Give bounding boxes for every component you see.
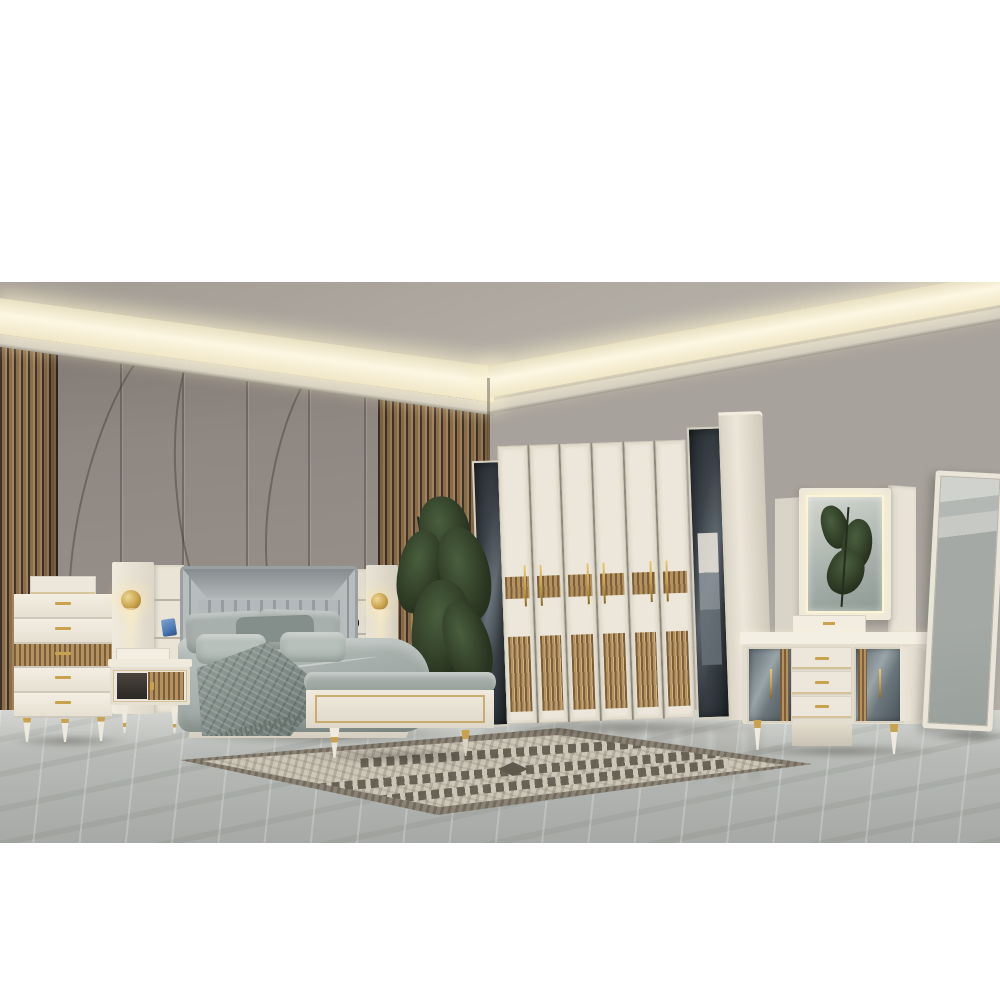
door-handle [770, 669, 772, 698]
dresser-mirror-door-left [747, 647, 793, 723]
bench-frame [306, 690, 494, 728]
dresser [740, 632, 936, 757]
dresser-counter [740, 632, 936, 644]
wood-strip [780, 649, 789, 721]
bench-gold-trim [315, 695, 485, 723]
mirror-reflection [697, 532, 722, 665]
bench-leg [328, 728, 341, 758]
chest-drawer-2 [14, 619, 112, 644]
door-slat-panel [603, 633, 627, 708]
chest-drawer-1 [14, 594, 112, 619]
drawer-handle [815, 705, 829, 708]
dresser-drawer-2 [791, 671, 852, 694]
nightstand-body [110, 667, 190, 705]
chest-drawer-5 [14, 693, 112, 718]
bedroom-photo [0, 282, 1000, 843]
bench [302, 672, 498, 758]
chest-leg [60, 719, 70, 742]
dresser-plinth [792, 724, 852, 746]
nightstand [108, 648, 196, 736]
dresser-mirror [799, 488, 891, 620]
door-handle [879, 669, 881, 698]
drawer-handle [55, 676, 71, 679]
drawer-handle [815, 657, 829, 660]
drawer-handle [55, 652, 71, 655]
standing-mirror-shadow [928, 730, 1000, 742]
blue-decor-object [161, 618, 177, 637]
nightstand-slat-door [148, 672, 184, 700]
chest-drawer-3-walnut [14, 644, 112, 669]
chest-of-drawers [14, 576, 118, 742]
door-slat-panel [635, 632, 659, 707]
nightstand-top [108, 659, 192, 667]
wall-sconce-left [121, 590, 141, 610]
dresser-leg [752, 720, 763, 750]
door-slat-panel [508, 637, 532, 712]
dresser-mirror-glass [806, 495, 884, 613]
wardrobe [471, 425, 773, 731]
tray-handle [823, 622, 835, 625]
standing-mirror [922, 470, 1000, 731]
chest-body [14, 594, 112, 718]
bench-cushion [304, 672, 496, 692]
dresser-mirror-wing-right [888, 485, 916, 635]
wood-strip [858, 649, 867, 721]
nightstand-leg [120, 705, 129, 733]
bench-leg [460, 730, 471, 756]
door-slat-panel [666, 631, 690, 706]
dresser-drawer-stack [791, 647, 852, 719]
dresser-drawer-1 [791, 647, 852, 670]
dresser-mirror-door-right [854, 647, 904, 723]
drawer-handle [55, 602, 71, 605]
chest-leg [96, 717, 106, 741]
door-knob [150, 682, 154, 690]
drawer-handle [815, 681, 829, 684]
dresser-leg [888, 724, 900, 754]
dresser-body [742, 644, 932, 724]
vanity-tray [792, 615, 866, 633]
letterboxed-photo-canvas [0, 0, 1000, 1000]
front-pillow [280, 632, 346, 662]
dresser-drawer-3 [791, 696, 852, 719]
chest-leg [22, 718, 32, 742]
storage-box [30, 576, 96, 596]
door-slat-panel [571, 634, 595, 709]
door-slat-panel [540, 636, 564, 711]
nightstand-leg [170, 707, 179, 733]
chest-drawer-4 [14, 668, 112, 693]
drawer-handle [55, 701, 71, 704]
nightstand-open-niche [117, 673, 147, 699]
wall-sconce-right [371, 593, 388, 610]
drawer-handle [55, 627, 71, 630]
standing-mirror-glass [928, 476, 1000, 727]
wardrobe-door-row [497, 440, 695, 724]
